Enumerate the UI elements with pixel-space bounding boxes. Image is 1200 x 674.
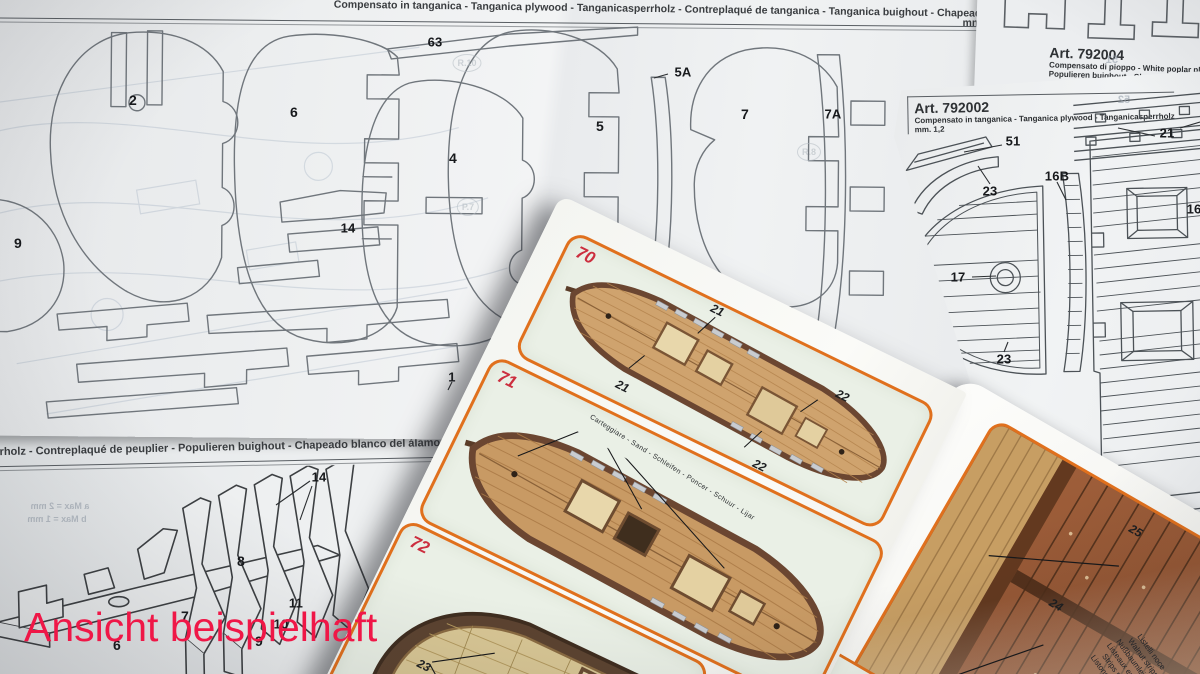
part-51-outline xyxy=(906,137,993,170)
photo-of-model-ship-plans: rholz - Contreplaqué de peuplier - Popul… xyxy=(0,0,1200,674)
sample-watermark-caption: Ansicht beispielhaft xyxy=(24,604,377,651)
part-2-outline xyxy=(49,30,239,302)
poplar-strip-text: rholz - Contreplaqué de peuplier - Popul… xyxy=(0,437,440,458)
part-21-strips xyxy=(1073,93,1200,160)
giant-letter-outlines xyxy=(976,0,1200,52)
part-7a-outline xyxy=(815,55,885,332)
bottom-row-parts xyxy=(46,296,459,422)
part-63-outline xyxy=(387,25,637,61)
part-9-outline xyxy=(0,199,65,332)
hatch-frame-1 xyxy=(1127,187,1188,238)
